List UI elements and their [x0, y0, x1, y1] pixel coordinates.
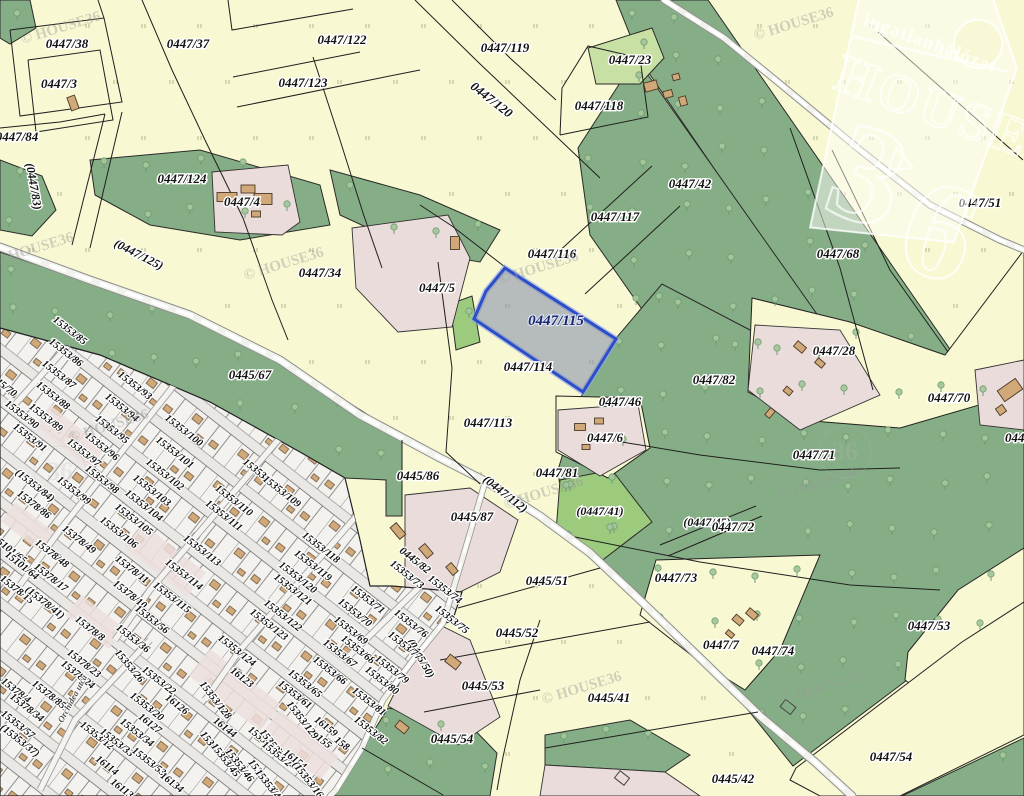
- parcel-label: 0447/42: [669, 176, 712, 191]
- parcel-label: 0445/67: [229, 367, 272, 382]
- watermark-roundel-text: 36: [47, 457, 73, 486]
- parcel-label: 0447/71: [793, 447, 836, 462]
- building: [575, 424, 586, 431]
- parcel-label: 0447/123: [278, 75, 328, 90]
- highlighted-parcel-label: 0447/115: [528, 313, 584, 329]
- building: [582, 445, 590, 450]
- watermark-roundel-text: 36: [832, 437, 858, 466]
- parcel-label: 0445/52: [496, 625, 539, 640]
- building: [451, 237, 460, 250]
- parcel-label: 0447/6: [587, 430, 624, 445]
- parcel-label: 0447/5: [419, 280, 456, 295]
- parcel-label: 0447/114: [504, 359, 553, 374]
- parcel-label: 0447/84: [0, 129, 39, 144]
- parcel-label: 0447/53: [908, 618, 951, 633]
- parcel-label: 0447/124: [157, 171, 207, 186]
- parcel-label: 0447/4: [224, 194, 261, 209]
- parcel-label: 0447/113: [464, 415, 513, 430]
- parcel-label: 0447/46: [599, 394, 642, 409]
- parcel-label: 0447/54: [870, 749, 913, 764]
- parcel-label: 0447: [1005, 430, 1024, 445]
- parcel-label: 0447/82: [693, 372, 736, 387]
- farmstead-area: [975, 360, 1024, 430]
- parcel-label: 0447/74: [752, 643, 795, 658]
- parcel-label: 0445/87: [451, 509, 494, 524]
- map-viewport: 0447/380447/370447/1220447/1230447/11904…: [0, 0, 1024, 796]
- parcel-label: 0445/53: [462, 678, 505, 693]
- parcel-label: 0447/3: [41, 76, 78, 91]
- building: [595, 418, 604, 424]
- parcel-label: 0447/23: [609, 52, 652, 67]
- parcel-label: 0447/34: [299, 265, 342, 280]
- building: [672, 73, 680, 81]
- parcel-label: 0447/70: [928, 390, 971, 405]
- parcel-label: 0447/28: [813, 343, 856, 358]
- parcel-label: (0447/41): [576, 504, 623, 518]
- parcel-label: 0447/72: [712, 519, 755, 534]
- parcel-label: 0447/37: [167, 36, 210, 51]
- parcel-label: 0445/86: [397, 468, 440, 483]
- parcel-label: 0447/117: [591, 209, 640, 224]
- building: [241, 185, 255, 193]
- parcel-label: 0445/51: [526, 573, 569, 588]
- parcel-label: 0445/42: [712, 771, 755, 786]
- parcel-label: 0447/73: [655, 570, 698, 585]
- cadastral-map-svg[interactable]: 0447/380447/370447/1220447/1230447/11904…: [0, 0, 1024, 796]
- parcel-label: 0445/54: [431, 731, 474, 746]
- parcel-label: 0447/119: [481, 40, 530, 55]
- parcel-label: 0447/7: [703, 637, 740, 652]
- parcel-label: 0447/122: [317, 32, 367, 47]
- building: [252, 211, 261, 217]
- parcel-label: 0447/118: [575, 98, 624, 113]
